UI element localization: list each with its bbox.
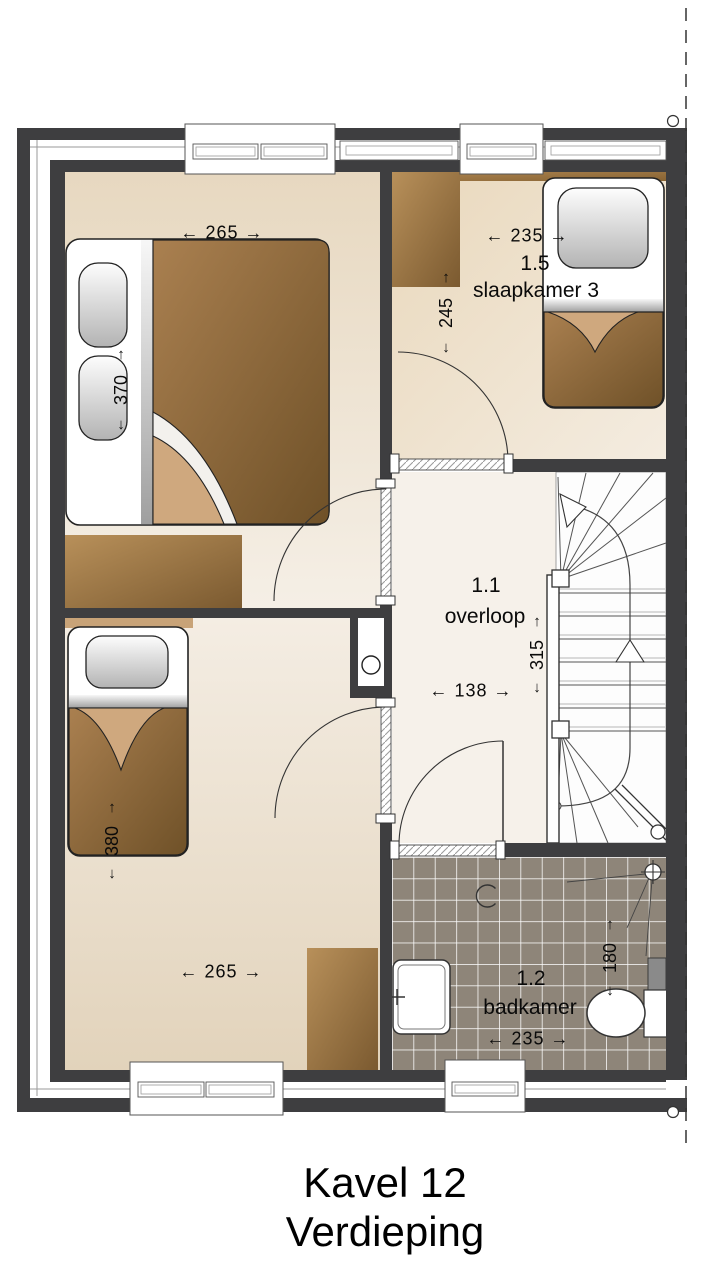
bed-sheet-strip	[69, 695, 187, 708]
door-threshold-bathroom	[398, 845, 497, 856]
dim-bedroom2-depth: ↑ 380 ↓	[101, 801, 123, 881]
floorplan-page: ← 265 → ↑ 370 ↓ ↑ 245 ↓ ← 235 → 1.5 slaa…	[0, 0, 703, 1265]
window-casement	[138, 1082, 204, 1097]
wall	[380, 172, 392, 486]
door-jamb	[390, 841, 399, 859]
stair-newel	[552, 721, 569, 738]
window-casement	[261, 144, 327, 159]
door-leaf-bedroom2	[381, 705, 391, 816]
door-leaf-slaapkamer3	[397, 459, 505, 470]
wall	[507, 459, 666, 472]
arrow-down-icon: ↓	[117, 418, 125, 432]
dim-bathroom-width: ← 235 →	[486, 1029, 569, 1050]
arrow-up-icon: ↑	[108, 801, 116, 815]
inner-wall-top	[50, 160, 666, 172]
dim-value: 370	[112, 375, 130, 405]
dim-bedroom2-width: ← 265 →	[179, 962, 262, 983]
wall	[503, 843, 666, 857]
shaft-interior	[358, 618, 384, 686]
outer-wall-bottom	[17, 1098, 687, 1112]
pipe-icon	[362, 656, 380, 674]
pillow	[79, 263, 127, 347]
outer-wall-top	[17, 128, 687, 140]
stair-handrail	[547, 575, 559, 843]
door-leaf-bedroom1	[381, 486, 391, 598]
room-code-overloop: 1.1	[471, 574, 500, 598]
arrow-down-icon: ↓	[606, 984, 614, 998]
dim-overloop-width: ← 138 →	[429, 681, 512, 702]
arrow-down-icon: ↓	[442, 341, 450, 355]
duct-box	[648, 958, 666, 990]
window-casement	[206, 1082, 274, 1097]
stairwell	[556, 472, 666, 843]
door-jamb	[376, 596, 395, 605]
duct-circle	[651, 825, 665, 839]
dim-bedroom1-width: ← 265 →	[180, 223, 263, 244]
room-name-slaapkamer3: slaapkamer 3	[473, 279, 599, 303]
party-wall-right	[666, 128, 687, 1080]
door-jamb	[504, 454, 513, 473]
door-jamb	[376, 814, 395, 823]
bed-double-bedroom1	[66, 239, 329, 525]
inner-wall-left	[50, 160, 65, 1082]
dim-slaapkamer3-width: ← 235 →	[485, 226, 568, 247]
dim-value: 245	[437, 298, 455, 328]
boundary-marker	[668, 116, 679, 127]
wall	[58, 608, 352, 618]
room-name-badkamer: badkamer	[483, 996, 576, 1020]
door-jamb	[376, 698, 395, 707]
dim-hall-depth: ↑ 245 ↓	[435, 271, 457, 355]
facade-panel	[545, 141, 666, 160]
wardrobe-bedroom1	[65, 535, 242, 608]
window-casement	[193, 144, 258, 159]
dim-bedroom1-depth: ↑ 370 ↓	[110, 348, 132, 432]
room-code-slaapkamer3: 1.5	[520, 252, 549, 276]
facade-panel	[340, 141, 458, 160]
dim-bathroom-depth: ↑ 180 ↓	[599, 918, 621, 998]
bed-single-bedroom2	[68, 627, 188, 856]
door-jamb	[376, 479, 395, 488]
dim-value: 315	[528, 640, 546, 670]
bed-sheet-strip	[141, 240, 154, 524]
window-casement	[452, 1082, 518, 1096]
arrow-up-icon: ↑	[442, 271, 450, 285]
arrow-down-icon: ↓	[533, 681, 541, 695]
wardrobe-slaapkamer3	[392, 172, 460, 287]
arrow-up-icon: ↑	[117, 348, 125, 362]
door-jamb	[496, 841, 505, 859]
outer-wall-left	[17, 128, 30, 1112]
pillow	[558, 188, 648, 268]
window-casement	[467, 144, 536, 159]
room-name-overloop: overloop	[445, 605, 526, 629]
dim-value: 380	[103, 826, 121, 856]
dim-value: 180	[601, 943, 619, 973]
staircase	[547, 472, 666, 843]
arrow-up-icon: ↑	[533, 615, 541, 629]
boundary-marker	[668, 1107, 679, 1118]
arrow-up-icon: ↑	[606, 918, 614, 932]
arrow-down-icon: ↓	[108, 867, 116, 881]
plan-subtitle: Verdieping	[286, 1208, 485, 1256]
door-jamb	[390, 454, 399, 473]
toilet-cistern	[644, 990, 667, 1037]
floorplan-drawing	[0, 0, 703, 1265]
room-code-badkamer: 1.2	[516, 967, 545, 991]
wardrobe-bedroom2	[307, 948, 378, 1070]
dim-stair-depth: ↑ 315 ↓	[526, 615, 548, 695]
pillow	[86, 636, 168, 688]
plan-title: Kavel 12	[303, 1159, 466, 1207]
stair-newel	[552, 570, 569, 587]
